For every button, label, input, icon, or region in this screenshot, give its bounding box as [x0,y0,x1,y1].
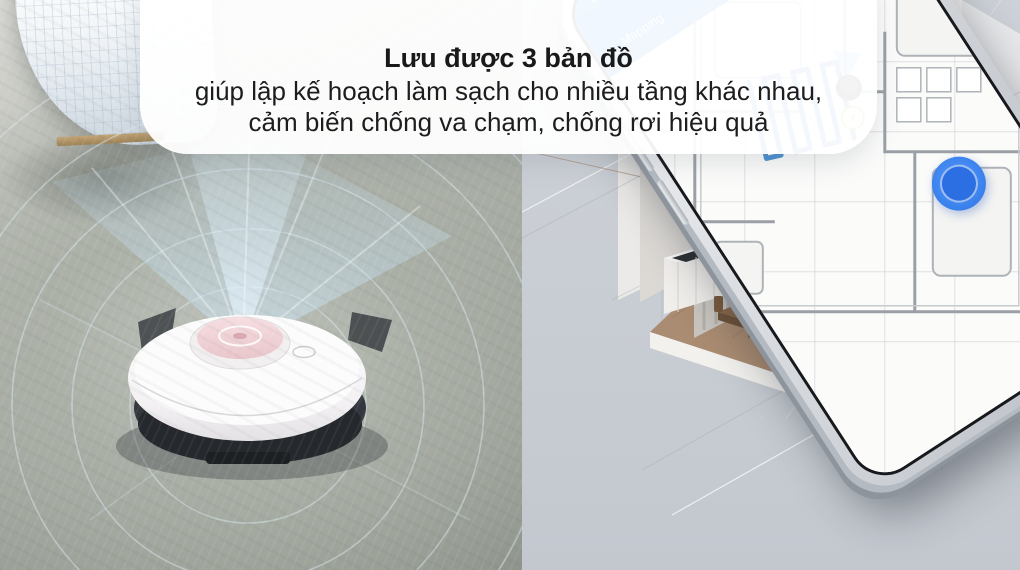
caption-line-1: giúp lập kế hoạch làm sạch cho nhiều tần… [195,76,822,107]
robot-vacuum [116,308,392,480]
robot-body [128,315,366,441]
robot-bumper [206,452,290,464]
caption-line-2: cảm biến chống va chạm, chống rơi hiệu q… [248,107,768,138]
side-brush-left-icon [138,308,176,352]
power-button-icon [293,347,315,358]
bathroom-fixtures [897,68,981,122]
robot-shadow [116,412,388,480]
side-brush-right-icon [348,312,392,352]
caption-banner: Lưu được 3 bản đồ giúp lập kế hoạch làm … [140,0,877,154]
caption-title: Lưu được 3 bản đồ [384,40,633,76]
lidar-turret [190,317,290,369]
marketing-image: 4:21 PM ‹ Mapping Map Control 1st F [0,0,1020,570]
robot-base [134,356,366,460]
